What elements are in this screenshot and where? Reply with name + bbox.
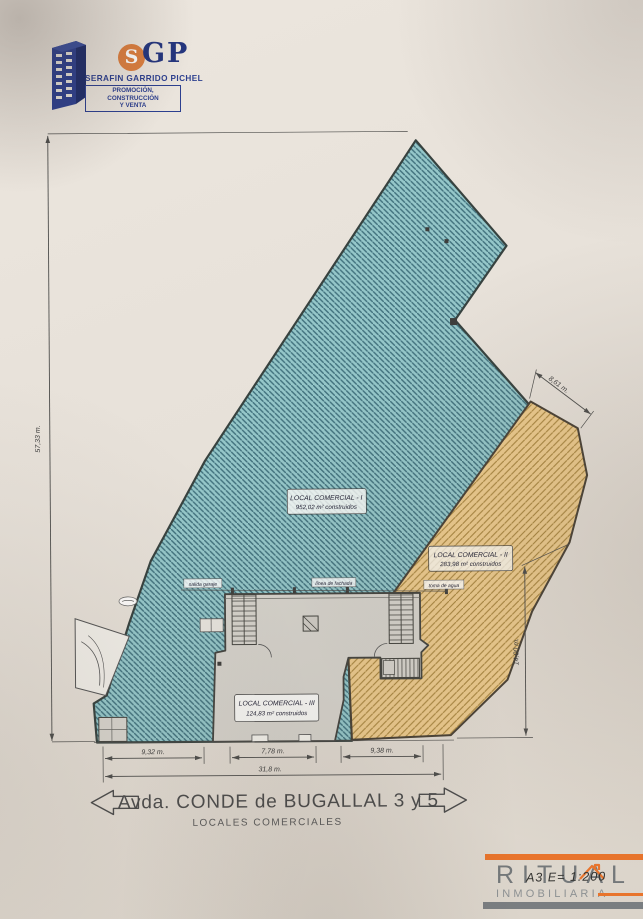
street-name: Avda. CONDE de BUGALLAL 3 y 5 (118, 790, 439, 813)
street-subtitle: LOCALES COMERCIALES (192, 817, 342, 829)
unit-2-name: LOCAL COMERCIAL - II (434, 552, 508, 560)
annotation-2: línea de fachada (315, 581, 352, 587)
door-bottom-1 (252, 735, 268, 742)
stair-landing-right (381, 658, 419, 677)
dim-right: 14,00 m. (513, 638, 520, 665)
unit-label-local-2: LOCAL COMERCIAL - II 283,98 m² construid… (429, 546, 513, 572)
unit-label-local-1: LOCAL COMERCIAL - I 952,02 m² construido… (287, 489, 366, 515)
dim-bottom-1: 9,32 m. (141, 749, 164, 756)
elevator-shaft (303, 616, 318, 631)
watermark-accent-line (598, 893, 643, 896)
unit-label-local-3: LOCAL COMERCIAL - III 124,83 m² construi… (235, 694, 319, 722)
site-plan-drawing: salida garaje línea de fachada toma de a… (0, 0, 643, 919)
door-bottom-2 (299, 735, 311, 742)
street-title-block: Avda. CONDE de BUGALLAL 3 y 5 LOCALES CO… (91, 788, 466, 830)
dim-bottom-3: 9,38 m. (370, 747, 393, 754)
stair-core-left (232, 594, 256, 644)
dim-bottom-2: 7,78 m. (261, 748, 284, 755)
watermark-top-bar (485, 854, 643, 860)
photographed-plan-sheet: S GP SERAFIN GARRIDO PICHEL PROMOCIÓN, C… (0, 0, 643, 919)
annotation-1: salida garaje (189, 582, 218, 588)
dim-top-right: 8,61 m. (547, 375, 570, 395)
watermark-division: INMOBILIARIA (496, 888, 608, 900)
wall-opening-left (200, 619, 223, 632)
unit-3-name: LOCAL COMERCIAL - III (239, 700, 315, 708)
ritual-watermark: RITUAL A3 E= 1:200 INMOBILIARIA (480, 845, 643, 919)
dim-left: 57,33 m. (35, 425, 42, 452)
annotation-3: toma de agua (429, 583, 460, 589)
small-oval-note (119, 597, 137, 606)
watermark-bottom-bar (483, 902, 643, 909)
stair-core-right (389, 593, 413, 643)
entrance-block (99, 717, 127, 741)
unit-3-area: 124,83 m² construidos (246, 710, 307, 717)
unit-1-area: 952,02 m² construidos (296, 504, 357, 511)
dim-bottom-total: 31,8 m. (258, 766, 281, 773)
sheet-scale-note: A3 E= 1:200 (526, 869, 606, 884)
unit-2-area: 283,98 m² construidos (439, 561, 501, 568)
unit-1-name: LOCAL COMERCIAL - I (290, 495, 362, 503)
